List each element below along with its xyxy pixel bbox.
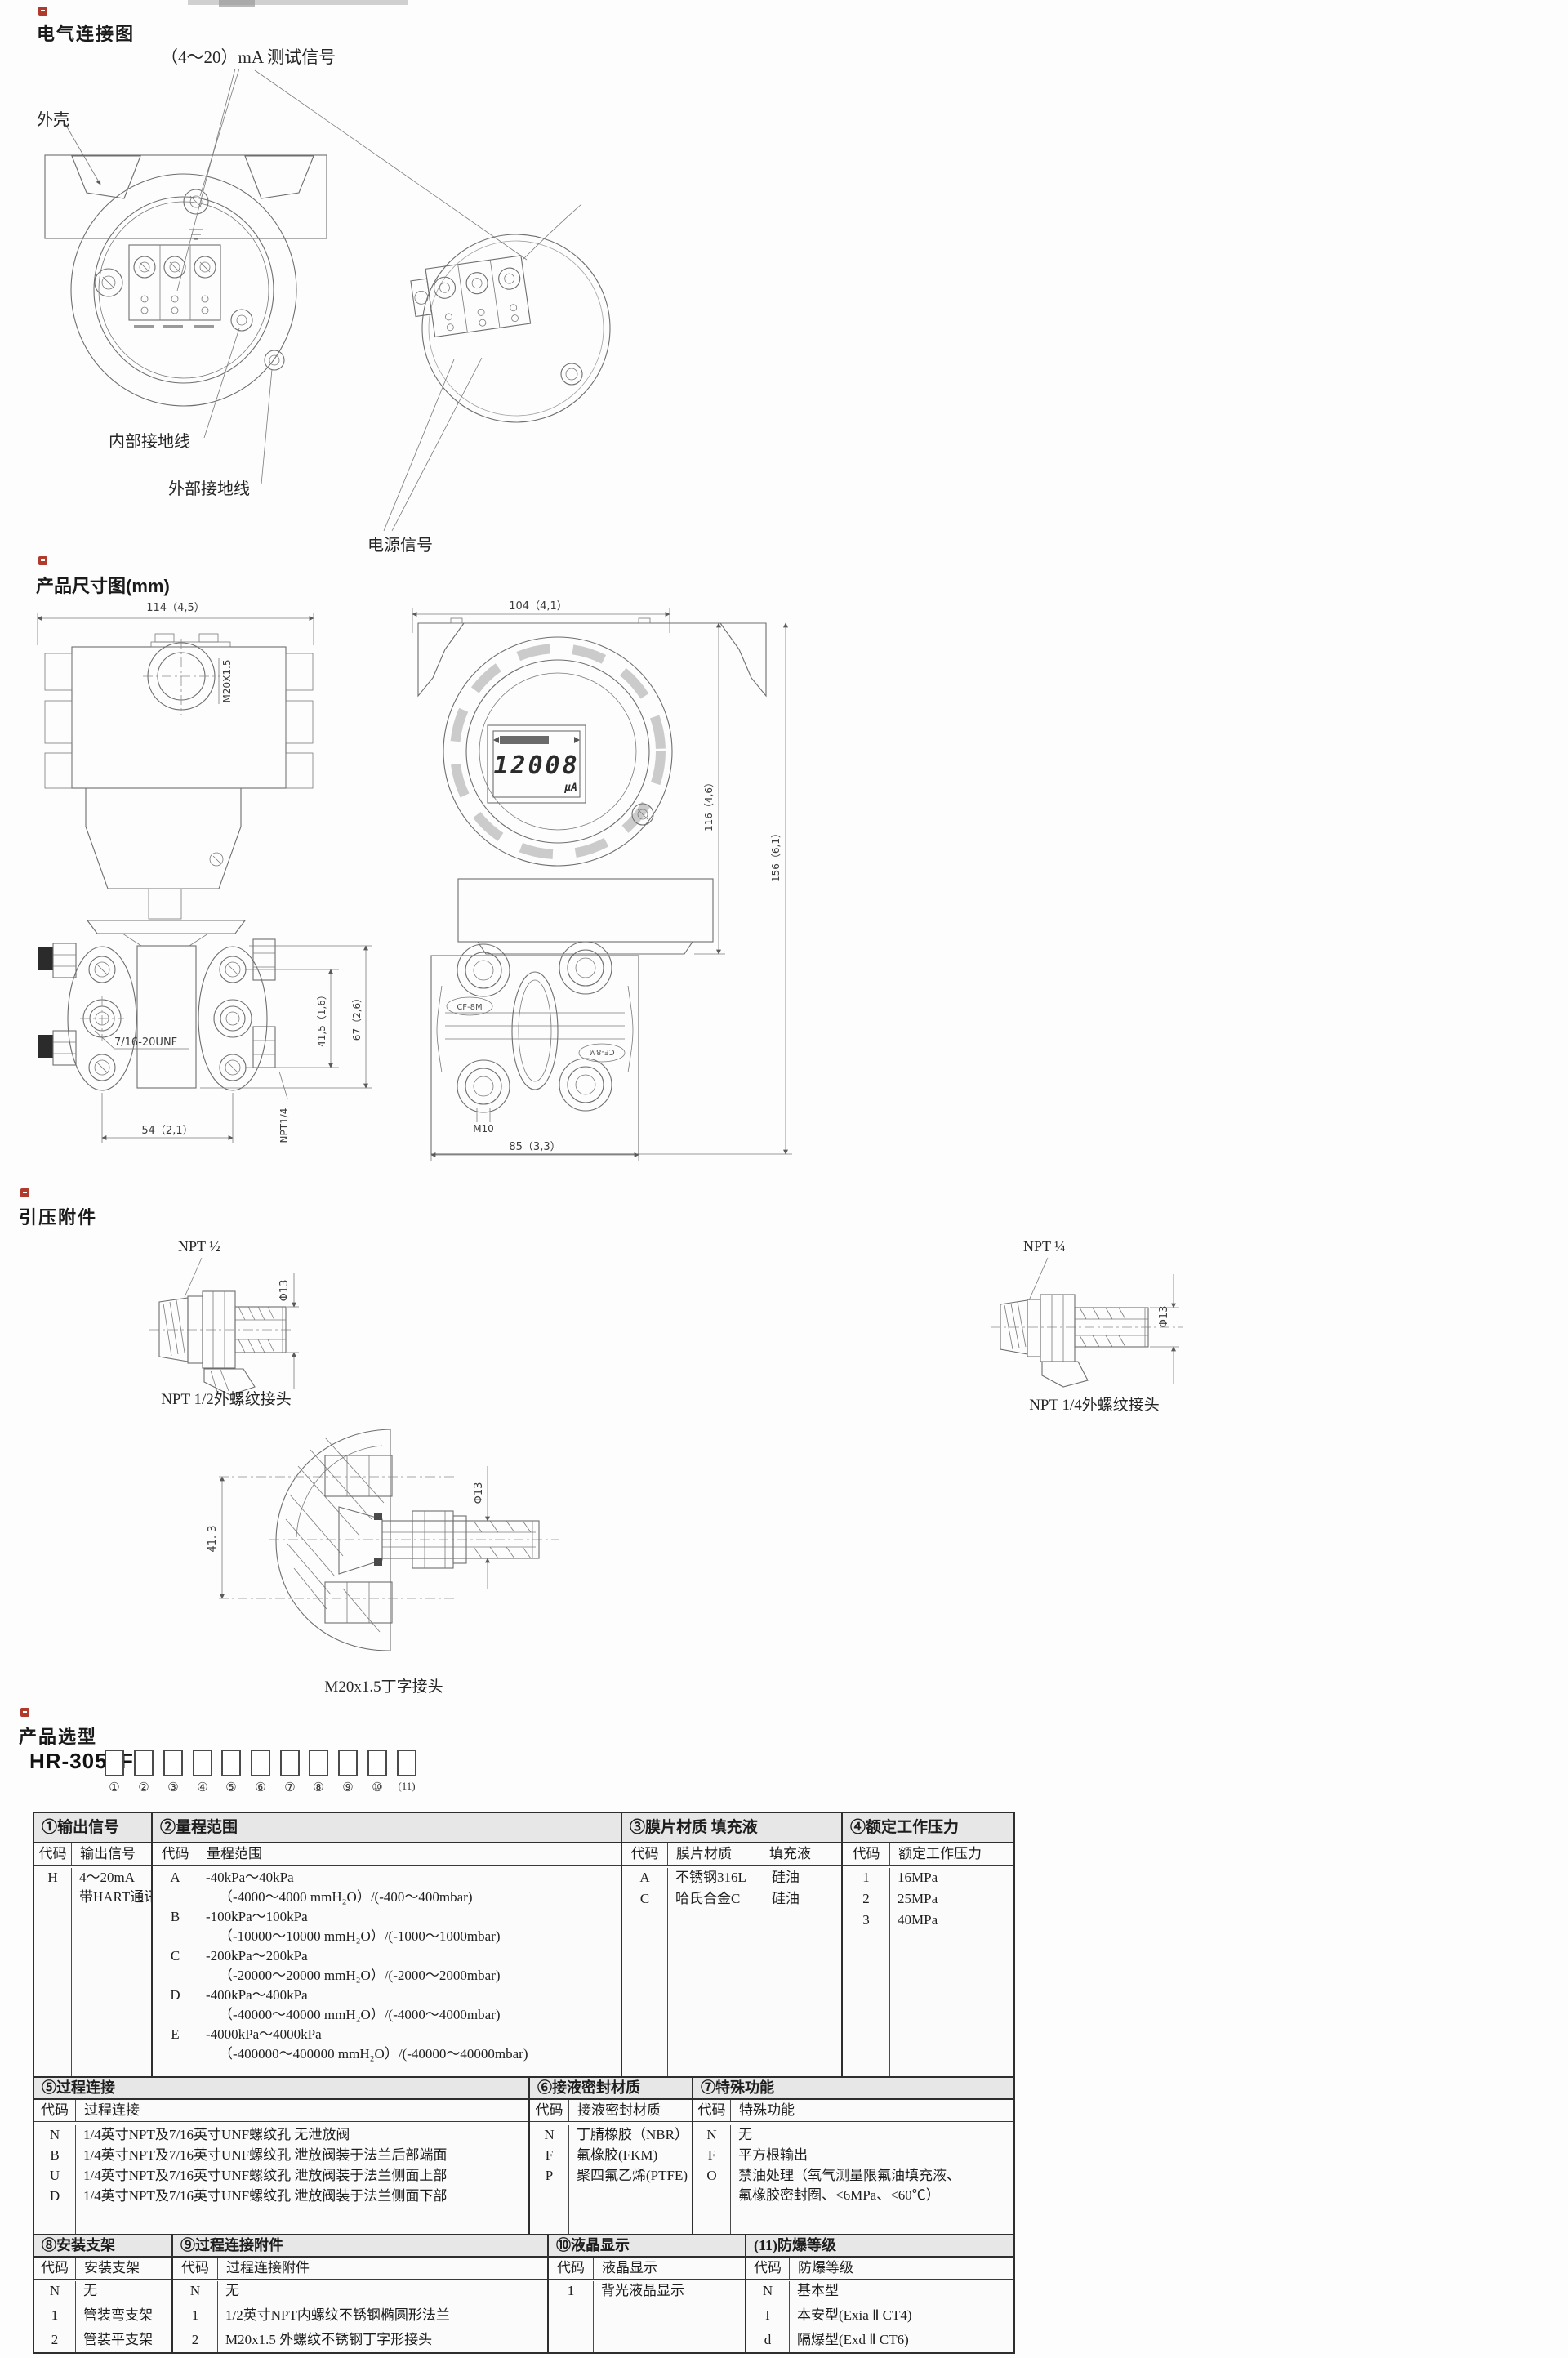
section-number: ⑩ [556,2237,571,2253]
cell-code: 1 [34,2306,75,2330]
cell-line: 氟橡胶密封圈、<6MPa、<60℃） [738,2186,960,2205]
selection-box-1 [105,1750,124,1776]
section-name: 接液密封材质 [552,2079,640,2096]
cell-label: 1/4英寸NPT及7/16英寸UNF螺纹孔 泄放阀装于法兰侧面上部 [75,2166,447,2186]
section-marker-icon [20,1708,29,1717]
position-number-1: ① [101,1780,127,1795]
cell-label: 隔爆型(Exd Ⅱ CT6) [789,2330,909,2354]
npt-half-caption: NPT 1/2外螺纹接头 [157,1387,296,1409]
section-name: 输出信号 [57,1819,119,1836]
cell-code: 2 [173,2330,217,2354]
cell-label: -100kPa～100kPa（-10000～10000 mmH₂O）/(-100… [198,1907,500,1946]
cell-label: 背光液晶显示 [593,2281,684,2306]
table-row: 1 16MPa [843,1868,1013,1889]
column-header: 代码 [549,2258,594,2279]
dim-67: 67（2,6） [351,993,363,1041]
cell-line: （-4000～4000 mmH₂O）/(-400～400mbar) [206,1888,472,1907]
table-row: N 无 [173,2281,547,2306]
table-section-special-function: ⑦特殊功能 代码 特殊功能 N 无 F 平方根输出 O [692,2078,1013,2235]
cell-code: H [34,1868,71,1907]
selection-box-6 [251,1750,270,1776]
table-section-seal-material: ⑥接液密封材质 代码 接液密封材质 N 丁腈橡胶（NBR） F 氟橡胶(FKM) [528,2078,692,2235]
cell-code: N [746,2281,789,2306]
selection-box-10 [367,1750,387,1776]
position-number-7: ⑦ [277,1780,303,1795]
section-name: 膜片材质 填充液 [645,1819,758,1836]
casting-stamp: CF-8M [589,1047,614,1056]
cell-line: （-40000～40000 mmH₂O）/(-4000～4000mbar) [206,2005,500,2025]
cell-label: 本安型(Exia Ⅱ CT4) [789,2306,912,2330]
position-number-2: ② [131,1780,157,1795]
column-header: 代码 [153,1843,198,1865]
cell-label: 1/4英寸NPT及7/16英寸UNF螺纹孔 泄放阀装于法兰后部端面 [75,2146,447,2166]
table-row: N 1/4英寸NPT及7/16英寸UNF螺纹孔 无泄放阀 [34,2125,528,2146]
selection-box-3 [163,1750,183,1776]
position-number-11: (11) [394,1780,420,1793]
cell-label: -400kPa～400kPa（-40000～40000 mmH₂O）/(-400… [198,1986,500,2025]
column-header: 特殊功能 [731,2100,1013,2121]
column-header: 代码 [843,1843,890,1865]
position-number-6: ⑥ [247,1780,274,1795]
section-name: 液晶显示 [571,2237,630,2253]
selection-box-2 [134,1750,154,1776]
table-row: N 基本型 [746,2281,1013,2306]
position-number-10: ⑩ [364,1780,390,1795]
column-header: 代码 [34,2258,76,2279]
selection-table: ①输出信号 代码 输出信号 H 4～20mA 带HART通讯 [33,1812,1015,2354]
cell-label: 无 [217,2281,239,2306]
column-header: 量程范围 [198,1843,621,1865]
section-name: 量程范围 [176,1819,238,1836]
dim-unf: 7/16-20UNF [114,1036,177,1049]
cell-code: 2 [34,2330,75,2354]
cell-label: 40MPa [889,1910,938,1932]
table-row: A 不锈钢316L 硅油 [622,1868,841,1889]
cell-code: N [693,2125,730,2146]
cell-label: 25MPa [889,1889,938,1910]
section-number: ① [42,1819,57,1836]
cell-line: -200kPa～200kPa [206,1946,500,1966]
cell-material: 哈氏合金C [667,1889,764,1910]
column-header: 液晶显示 [594,2258,745,2279]
cell-label: 4～20mA 带HART通讯 [71,1868,151,1907]
table-section-rated-pressure: ④额定工作压力 代码 额定工作压力 1 16MPa 2 25MPa [841,1813,1013,2076]
table-row: U 1/4英寸NPT及7/16英寸UNF螺纹孔 泄放阀装于法兰侧面上部 [34,2166,528,2186]
cell-label: 管装平支架 [75,2330,153,2354]
display-view-dimension-drawing: 104（4,1） 12008 µA [412,600,792,1161]
section-title-dimensions: 产品尺寸图(mm) [36,572,170,598]
section-number: ⑦ [701,2079,715,2096]
cell-line: -40kPa～40kPa [206,1868,472,1888]
page-crop-artifact [219,0,255,7]
column-header: 填充液 [761,1843,841,1865]
section-marker-icon [20,1188,29,1197]
table-row: F 氟橡胶(FKM) [530,2146,692,2166]
dim-dia13: Φ13 [473,1482,485,1504]
column-header: 额定工作压力 [890,1843,1013,1865]
cell-line: （-400000～400000 mmH₂O）/(-40000～40000mbar… [206,2044,528,2064]
table-row: C 哈氏合金C 硅油 [622,1889,841,1910]
cell-code: D [34,2186,75,2207]
column-header: 代码 [34,1843,72,1865]
npt-quarter-fitting-drawing: Φ13 [991,1258,1183,1387]
cell-code: 1 [173,2306,217,2330]
table-row: F 平方根输出 [693,2146,1013,2166]
selection-box-4 [193,1750,212,1776]
table-row: B 1/4英寸NPT及7/16英寸UNF螺纹孔 泄放阀装于法兰后部端面 [34,2146,528,2166]
section-name: 过程连接 [56,2079,115,2096]
table-row: D 1/4英寸NPT及7/16英寸UNF螺纹孔 泄放阀装于法兰侧面下部 [34,2186,528,2207]
column-header: 代码 [530,2100,569,2121]
cell-code: A [622,1868,667,1889]
npt-quarter-thread-label: NPT ¼ [1023,1238,1066,1255]
section-name: 安装支架 [56,2237,115,2253]
table-section-output-signal: ①输出信号 代码 输出信号 H 4～20mA 带HART通讯 [34,1813,151,2076]
cell-label: 管装弯支架 [75,2306,153,2330]
cell-line: （-10000～10000 mmH₂O）/(-1000～1000mbar) [206,1927,500,1946]
cell-code: 2 [843,1889,889,1910]
electrical-connection-drawing [45,69,610,531]
dim-104: 104（4,1） [509,600,568,613]
position-number-8: ⑧ [305,1780,332,1795]
cell-code: N [530,2125,568,2146]
test-signal-label: （4～20）mA 测试信号 [161,44,336,69]
table-row: 1 背光液晶显示 [549,2281,745,2306]
section-marker-icon [38,7,47,16]
section-number: ⑨ [180,2237,195,2253]
cell-label: 1/2英寸NPT内螺纹不锈钢椭圆形法兰 [217,2306,450,2330]
cell-label: 基本型 [789,2281,839,2306]
section-name: 防爆等级 [777,2237,836,2253]
cell-code: N [173,2281,217,2306]
table-row: A -40kPa～40kPa（-4000～4000 mmH₂O）/(-400～4… [153,1868,621,1907]
section-number: ④ [850,1819,866,1836]
external-ground-label: 外部接地线 [168,475,250,499]
cell-label: -4000kPa～4000kPa（-400000～400000 mmH₂O）/(… [198,2025,528,2064]
position-number-9: ⑨ [335,1780,361,1795]
dim-85: 85（3,3） [509,1141,560,1153]
table-band-3: ⑧安装支架 代码 安装支架 N 无 1 管装弯支架 2 [34,2234,1013,2354]
cell-code: N [34,2281,75,2306]
cell-code: F [530,2146,568,2166]
cell-code: A [153,1868,198,1907]
housing-label: 外壳 [37,106,69,130]
section-marker-icon [38,556,47,565]
section-title-fittings: 引压附件 [19,1203,97,1229]
column-header: 过程连接附件 [218,2258,547,2279]
cell-label: 1/4英寸NPT及7/16英寸UNF螺纹孔 无泄放阀 [75,2125,350,2146]
cell-line: 禁油处理（氧气测量限氟油填充液、 [738,2166,960,2186]
cell-label: 聚四氟乙烯(PTFE) [568,2166,688,2186]
section-number: ② [160,1819,176,1836]
cell-code: B [34,2146,75,2166]
power-signal-label: 电源信号 [367,532,433,555]
section-name: 过程连接附件 [195,2237,283,2253]
cell-label: 平方根输出 [730,2146,808,2166]
table-row: 1 管装弯支架 [34,2306,171,2330]
cell-code: B [153,1907,198,1946]
section-name: 特殊功能 [715,2079,774,2096]
dim-41-5: 41,5（1,6） [316,990,327,1047]
cell-label: 禁油处理（氧气测量限氟油填充液、氟橡胶密封圈、<6MPa、<60℃） [730,2166,960,2207]
table-row: N 丁腈橡胶（NBR） [530,2125,692,2146]
table-row: P 聚四氟乙烯(PTFE) [530,2166,692,2186]
column-header: 代码 [173,2258,218,2279]
cell-code: E [153,2025,198,2064]
table-row: D -400kPa～400kPa（-40000～40000 mmH₂O）/(-4… [153,1986,621,2025]
section-title-electrical: 电气连接图 [37,20,135,46]
selection-box-8 [309,1750,328,1776]
cell-code: C [153,1946,198,1986]
cell-label: 无 [730,2125,752,2146]
casting-stamp: CF-8M [457,1003,482,1012]
cell-label: -40kPa～40kPa（-4000～4000 mmH₂O）/(-400～400… [198,1868,472,1907]
table-band-2: ⑤过程连接 代码 过程连接 N 1/4英寸NPT及7/16英寸UNF螺纹孔 无泄… [34,2076,1013,2235]
cell-line: -100kPa～100kPa [206,1907,500,1927]
cell-line: -400kPa～400kPa [206,1986,500,2005]
cell-label: 16MPa [889,1868,938,1889]
cell-code: 1 [549,2281,593,2306]
table-row: B -100kPa～100kPa（-10000～10000 mmH₂O）/(-1… [153,1907,621,1946]
m20-tee-caption: M20x1.5丁字接头 [310,1674,457,1696]
table-section-process-connection: ⑤过程连接 代码 过程连接 N 1/4英寸NPT及7/16英寸UNF螺纹孔 无泄… [34,2078,528,2235]
internal-ground-label: 内部接地线 [109,428,190,452]
column-header: 代码 [746,2258,790,2279]
dim-m20: M20X1.5 [221,660,233,703]
lcd-value: 12008 [493,751,579,780]
cell-code: P [530,2166,568,2186]
table-section-connection-accessory: ⑨过程连接附件 代码 过程连接附件 N 无 1 1/2英寸NPT内螺纹不锈钢椭圆… [171,2235,547,2354]
cell-code: C [622,1889,667,1910]
column-header: 膜片材质 [668,1843,766,1865]
table-row: d 隔爆型(Exd Ⅱ CT6) [746,2330,1013,2354]
cell-line: 带HART通讯 [79,1888,151,1907]
table-row: I 本安型(Exia Ⅱ CT4) [746,2306,1013,2330]
dim-dia13: Φ13 [278,1280,291,1302]
section-number: ⑥ [537,2079,552,2096]
table-row: E -4000kPa～4000kPa（-400000～400000 mmH₂O）… [153,2025,621,2064]
cell-line: （-20000～20000 mmH₂O）/(-2000～2000mbar) [206,1966,500,1986]
dim-156: 156（6,1） [770,828,782,882]
npt-half-thread-label: NPT ½ [178,1238,220,1255]
cell-label: 丁腈橡胶（NBR） [568,2125,688,2146]
column-header: 代码 [34,2100,76,2121]
column-header: 代码 [622,1843,668,1865]
m20-tee-fitting-drawing: 41. 3 Φ13 [207,1429,559,1651]
table-row: N 无 [34,2281,171,2306]
cell-code: D [153,1986,198,2025]
cell-code: F [693,2146,730,2166]
dim-54: 54（2,1） [141,1125,193,1137]
dim-dia13: Φ13 [1158,1306,1170,1328]
table-band-1: ①输出信号 代码 输出信号 H 4～20mA 带HART通讯 [34,1813,1013,2076]
selection-box-11 [397,1750,416,1776]
dim-npt14: NPT1/4 [278,1108,290,1143]
section-name: 额定工作压力 [866,1819,959,1836]
cell-code: U [34,2166,75,2186]
cell-label: 氟橡胶(FKM) [568,2146,657,2166]
table-section-diaphragm: ③膜片材质 填充液 代码 膜片材质 填充液 A 不锈钢316L 硅油 C 哈 [621,1813,841,2076]
npt-quarter-caption: NPT 1/4外螺纹接头 [1025,1393,1164,1415]
position-number-4: ④ [189,1780,216,1795]
cell-code: d [746,2330,789,2354]
cell-fill: 硅油 [764,1889,800,1910]
section-number: ⑧ [42,2237,56,2253]
cell-label: 无 [75,2281,97,2306]
column-header: 防爆等级 [790,2258,1013,2279]
column-header: 安装支架 [76,2258,171,2279]
table-row: O 禁油处理（氧气测量限氟油填充液、氟橡胶密封圈、<6MPa、<60℃） [693,2166,1013,2207]
cell-label: M20x1.5 外螺纹不锈钢丁字形接头 [217,2330,432,2354]
cell-material: 不锈钢316L [667,1868,764,1889]
table-row: 3 40MPa [843,1910,1013,1932]
cell-label: 1/4英寸NPT及7/16英寸UNF螺纹孔 泄放阀装于法兰侧面下部 [75,2186,447,2207]
cell-code: I [746,2306,789,2330]
selection-box-5 [221,1750,241,1776]
npt-half-fitting-drawing: Φ13 [149,1258,299,1395]
table-row: 2 25MPa [843,1889,1013,1910]
section-title-selection: 产品选型 [19,1723,97,1749]
cell-code: 3 [843,1910,889,1932]
cell-label: -200kPa～200kPa（-20000～20000 mmH₂O）/(-200… [198,1946,500,1986]
cell-code: N [34,2125,75,2146]
table-row: 2 管装平支架 [34,2330,171,2354]
section-number: (11) [754,2237,777,2253]
section-number: ③ [630,1819,645,1836]
cell-line: 4～20mA [79,1868,151,1888]
cell-code: 1 [843,1868,889,1889]
dim-41-3: 41. 3 [207,1525,219,1552]
cell-code: O [693,2166,730,2207]
table-section-explosion-proof: (11)防爆等级 代码 防爆等级 N 基本型 I 本安型(Exia Ⅱ CT4) [745,2235,1013,2354]
lcd-unit: µA [563,782,577,794]
table-row: C -200kPa～200kPa（-20000～20000 mmH₂O）/(-2… [153,1946,621,1986]
cell-fill: 硅油 [764,1868,800,1889]
cell-line: -4000kPa～4000kPa [206,2025,528,2044]
table-section-range: ②量程范围 代码 量程范围 A -40kPa～40kPa（-4000～4000 … [151,1813,621,2076]
column-header: 过程连接 [76,2100,528,2121]
column-header: 代码 [693,2100,731,2121]
table-row: H 4～20mA 带HART通讯 [34,1868,151,1907]
dim-m10: M10 [473,1123,494,1134]
section-number: ⑤ [42,2079,56,2096]
datasheet-page: 114（4,5） M20X1.5 [0,0,1568,2358]
selection-box-9 [338,1750,358,1776]
table-row: 2 M20x1.5 外螺纹不锈钢丁字形接头 [173,2330,547,2354]
dim-116: 116（4,6） [703,778,715,831]
column-header: 输出信号 [72,1843,151,1865]
position-number-3: ③ [160,1780,186,1795]
table-section-mounting-bracket: ⑧安装支架 代码 安装支架 N 无 1 管装弯支架 2 [34,2235,171,2354]
dim-114: 114（4,5） [146,602,205,614]
front-view-dimension-drawing: 114（4,5） M20X1.5 [38,602,372,1143]
table-row: 1 1/2英寸NPT内螺纹不锈钢椭圆形法兰 [173,2306,547,2330]
column-header: 接液密封材质 [569,2100,692,2121]
table-row: N 无 [693,2125,1013,2146]
table-section-lcd-display: ⑩液晶显示 代码 液晶显示 1 背光液晶显示 [547,2235,745,2354]
position-number-5: ⑤ [218,1780,244,1795]
selection-box-7 [280,1750,300,1776]
